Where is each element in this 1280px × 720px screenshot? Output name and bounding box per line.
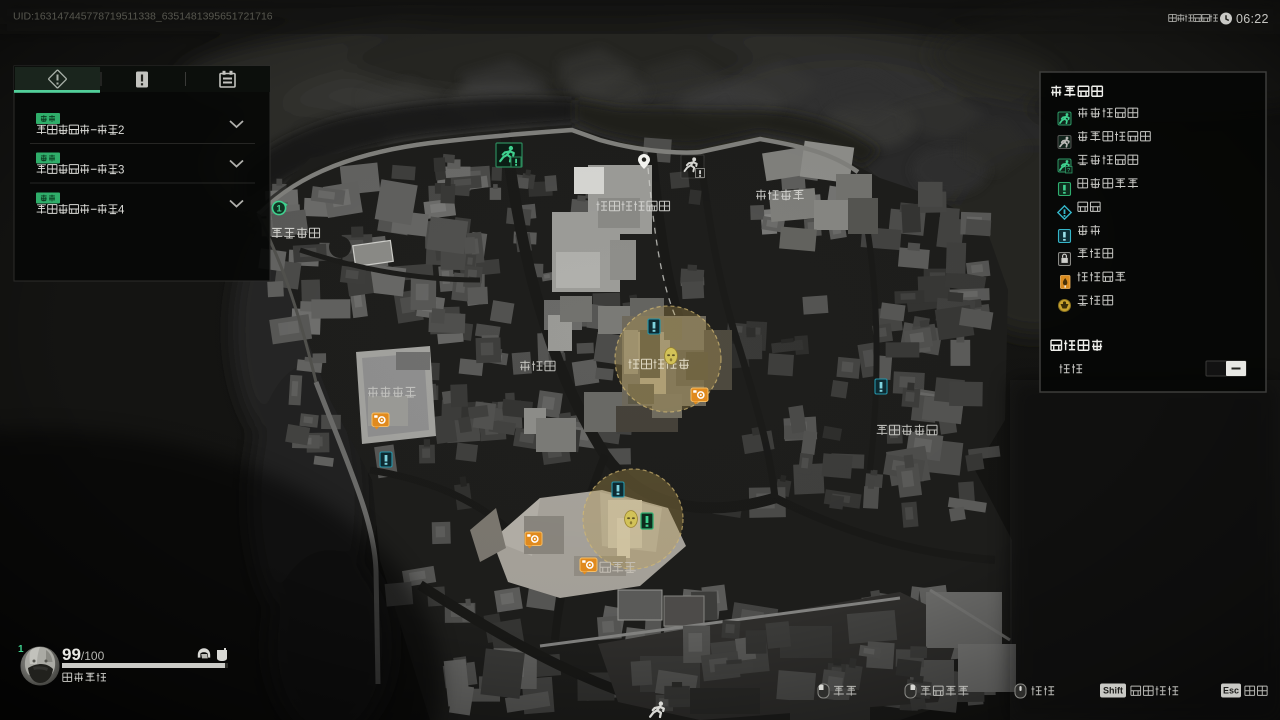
svg-text:UID:163147445778719511338_6351: UID:163147445778719511338_63514813956517… (13, 11, 273, 23)
svg-text:4: 4 (118, 205, 125, 217)
svg-text:?: ? (1067, 168, 1070, 174)
svg-text:3: 3 (118, 165, 124, 177)
svg-text:Shift: Shift (1103, 686, 1123, 696)
svg-text:06:22: 06:22 (1236, 12, 1269, 26)
svg-text:Esc: Esc (1223, 686, 1239, 696)
svg-text:2: 2 (118, 125, 124, 137)
svg-text:1: 1 (276, 203, 282, 214)
svg-text:1: 1 (18, 644, 24, 655)
